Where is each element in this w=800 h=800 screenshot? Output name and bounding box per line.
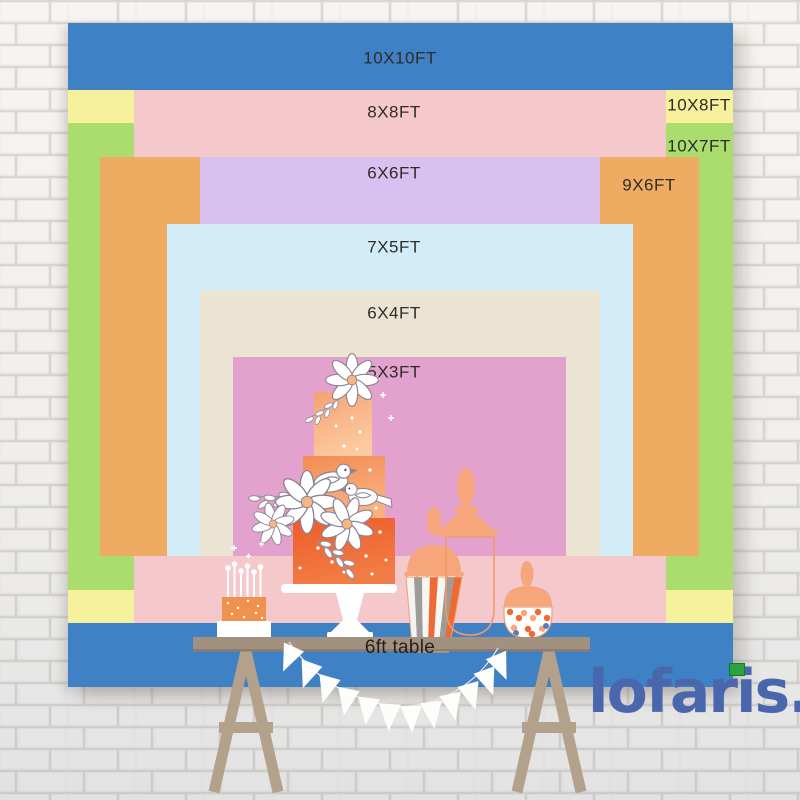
- backdrop-rect-5x3ft: [233, 357, 566, 556]
- size-label-10x8ft: 10X8FT: [667, 97, 730, 114]
- size-label-7x5ft: 7X5FT: [367, 239, 421, 256]
- size-label-5x3ft: 5X3FT: [367, 364, 421, 381]
- brand-logo-flag-icon: [729, 663, 745, 676]
- backdrop-size-chart: 10X10FT 10X8FT 10X7FT 8X8FT 9X6FT 6X6FT …: [0, 0, 800, 800]
- size-label-10x7ft: 10X7FT: [667, 138, 730, 155]
- size-label-9x6ft: 9X6FT: [622, 177, 676, 194]
- size-label-6x4ft: 6X4FT: [367, 305, 421, 322]
- table-size-label: 6ft table: [365, 637, 435, 659]
- size-label-10x10ft: 10X10FT: [363, 50, 436, 67]
- size-label-8x8ft: 8X8FT: [367, 104, 421, 121]
- brand-logo: lofaris.: [588, 662, 800, 722]
- size-label-6x6ft: 6X6FT: [367, 165, 421, 182]
